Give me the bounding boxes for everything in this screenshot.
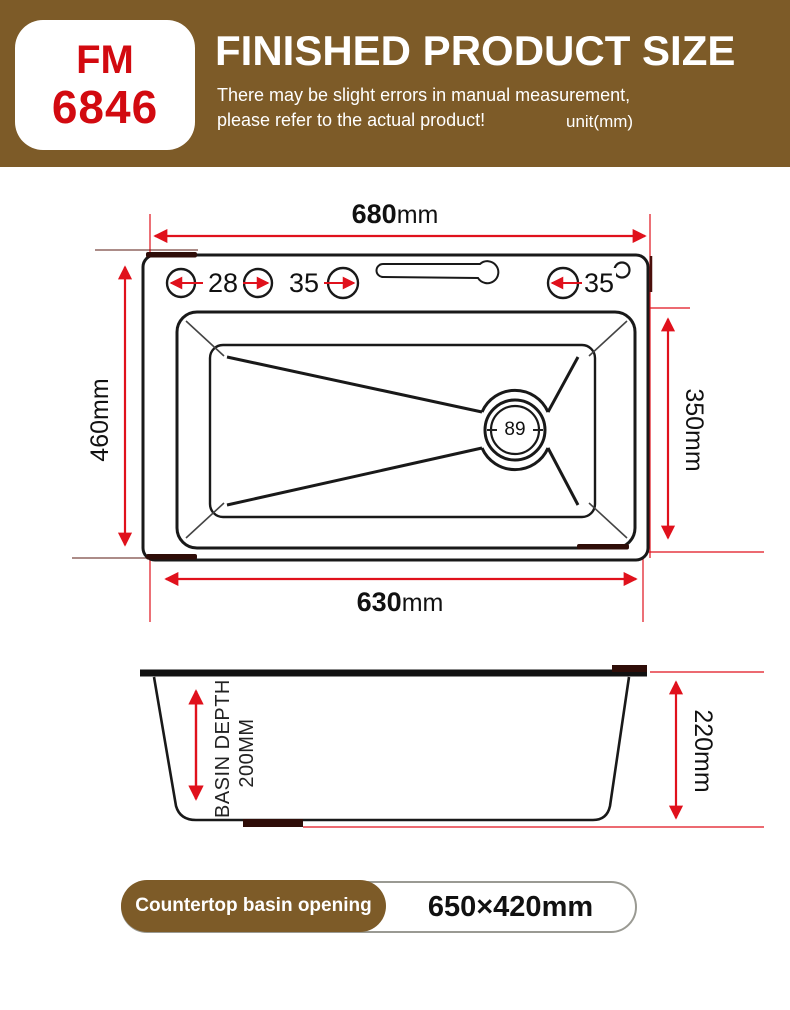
dim-top-width-label: 680mm — [295, 199, 495, 230]
model-number: 6846 — [52, 82, 158, 133]
dim-bottom-width-label: 630mm — [300, 587, 500, 618]
side-height-label: 220mm — [689, 691, 717, 811]
basin-depth-line2: 200MM — [235, 688, 259, 818]
basin-depth-line1: BASIN DEPTH — [211, 688, 235, 818]
model-badge: FM 6846 — [15, 20, 195, 150]
unit-note: unit(mm) — [566, 112, 633, 132]
product-size-page: FM 6846 FINISHED PRODUCT SIZE There may … — [0, 0, 790, 1010]
bottom-dark-mark — [243, 819, 303, 827]
footer-value: 650×420mm — [386, 891, 635, 924]
footer-pill: Countertop basin opening 650×420mm — [121, 881, 637, 933]
dim-right-height-label: 350mm — [680, 370, 708, 490]
hole1-label: 28 — [203, 268, 243, 298]
footer-label: Countertop basin opening — [121, 880, 386, 932]
page-title: FINISHED PRODUCT SIZE — [215, 27, 780, 75]
drain-diameter-label: 89 — [497, 419, 533, 441]
hole3-label: 35 — [582, 268, 616, 298]
model-prefix: FM — [76, 38, 134, 82]
disclaimer-line1: There may be slight errors in manual mea… — [217, 85, 630, 106]
sink-top-outline — [143, 255, 648, 560]
basin-depth-label: BASIN DEPTH 200MM — [211, 688, 261, 818]
disclaimer-line2: please refer to the actual product! — [217, 110, 485, 131]
header-band: FM 6846 FINISHED PRODUCT SIZE There may … — [0, 0, 790, 167]
dim-left-height-label: 460mm — [86, 360, 114, 480]
rim-dark-mark — [612, 665, 647, 672]
hole2-label: 35 — [286, 268, 322, 298]
